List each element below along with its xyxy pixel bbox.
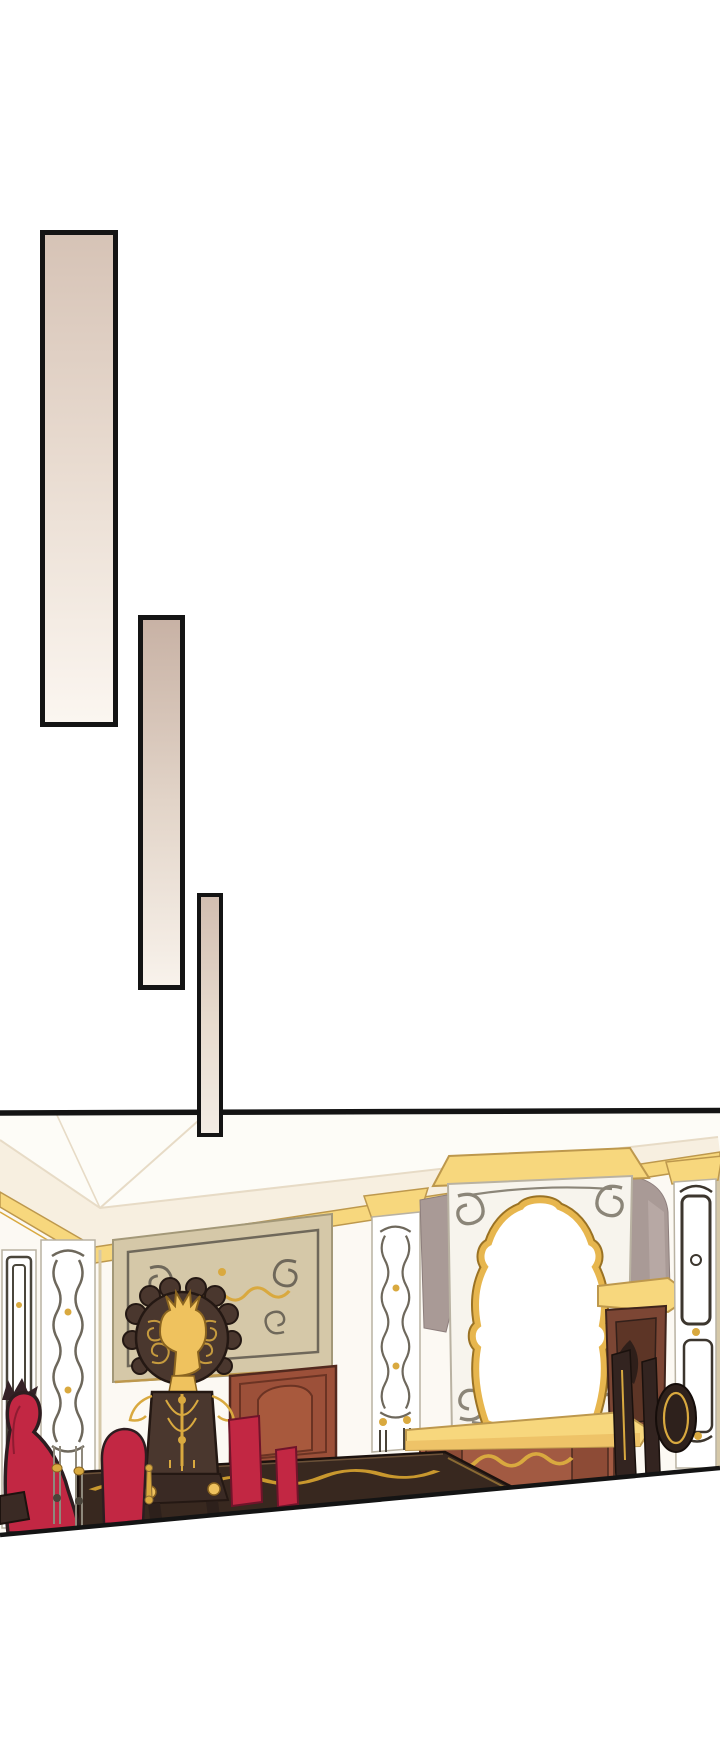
panel-top-border	[0, 1111, 720, 1114]
dining-hall-svg	[0, 1100, 720, 1560]
red-chair-mid	[102, 1429, 146, 1524]
gold-candlestick	[146, 1470, 152, 1498]
dining-hall-illustration	[0, 1100, 720, 1560]
transition-panel-1	[40, 230, 118, 727]
pilaster-mid	[364, 1188, 428, 1452]
transition-panel-2	[138, 615, 185, 990]
chair-arm	[0, 1492, 29, 1524]
webtoon-page	[0, 0, 720, 1750]
transition-panel-3	[197, 893, 223, 1137]
